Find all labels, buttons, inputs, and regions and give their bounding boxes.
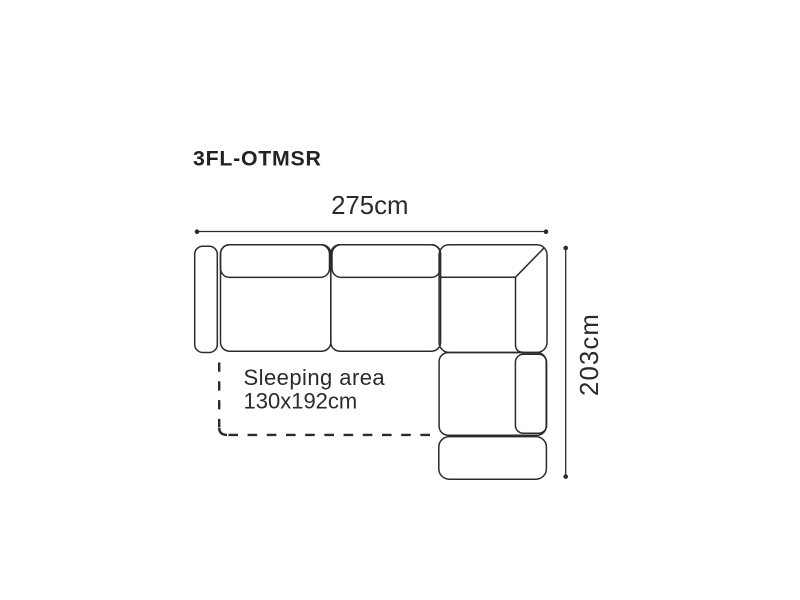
svg-text:Sleeping area: Sleeping area bbox=[244, 365, 386, 390]
svg-text:275cm: 275cm bbox=[331, 192, 408, 220]
svg-text:130x192cm: 130x192cm bbox=[244, 389, 358, 414]
svg-text:3FL-OTMSR: 3FL-OTMSR bbox=[193, 146, 322, 170]
svg-text:203cm: 203cm bbox=[576, 313, 604, 396]
